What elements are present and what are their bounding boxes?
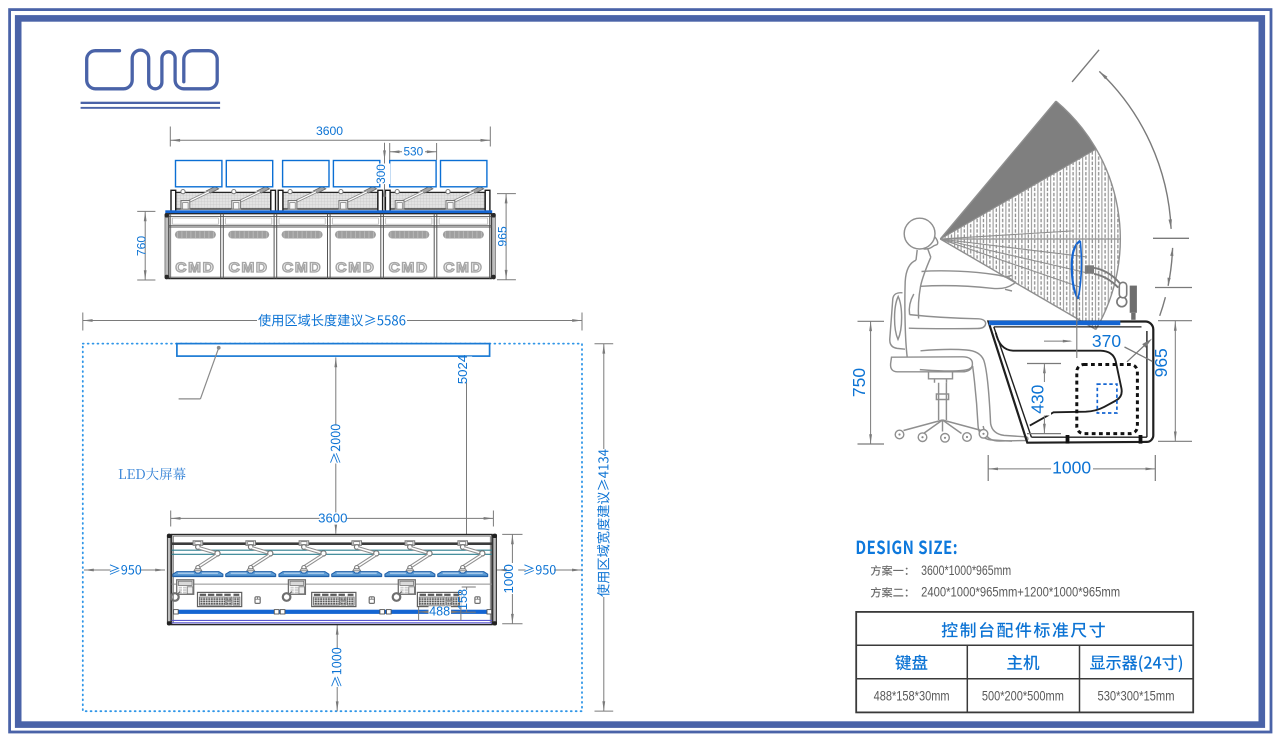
- svg-text:750: 750: [849, 368, 869, 397]
- svg-text:CMD: CMD: [175, 260, 215, 275]
- svg-text:CMD: CMD: [229, 260, 269, 275]
- svg-text:530: 530: [403, 144, 423, 158]
- svg-text:488*158*30mm: 488*158*30mm: [874, 689, 950, 704]
- svg-text:370: 370: [1092, 331, 1121, 351]
- svg-text:488: 488: [429, 605, 450, 619]
- svg-text:CMD: CMD: [336, 260, 376, 275]
- svg-text:CMD: CMD: [443, 260, 483, 275]
- svg-text:430: 430: [1028, 384, 1048, 413]
- svg-text:965: 965: [495, 226, 509, 247]
- svg-text:5024: 5024: [455, 355, 470, 384]
- svg-text:2400*1000*965mm+1200*1000*965m: 2400*1000*965mm+1200*1000*965mm: [921, 585, 1120, 600]
- svg-text:300: 300: [374, 164, 388, 184]
- svg-text:158: 158: [456, 589, 470, 610]
- svg-text:CMD: CMD: [282, 260, 322, 275]
- svg-text:3600: 3600: [316, 124, 343, 138]
- svg-text:3600: 3600: [318, 511, 347, 526]
- svg-text:3600*1000*965mm: 3600*1000*965mm: [921, 563, 1011, 578]
- svg-text:CMD: CMD: [389, 260, 429, 275]
- svg-text:1000: 1000: [1052, 458, 1091, 478]
- svg-text:1000: 1000: [501, 564, 516, 593]
- svg-text:500*200*500mm: 500*200*500mm: [982, 689, 1064, 704]
- svg-text:965: 965: [1151, 348, 1171, 377]
- svg-text:760: 760: [135, 236, 149, 257]
- svg-text:530*300*15mm: 530*300*15mm: [1098, 689, 1175, 704]
